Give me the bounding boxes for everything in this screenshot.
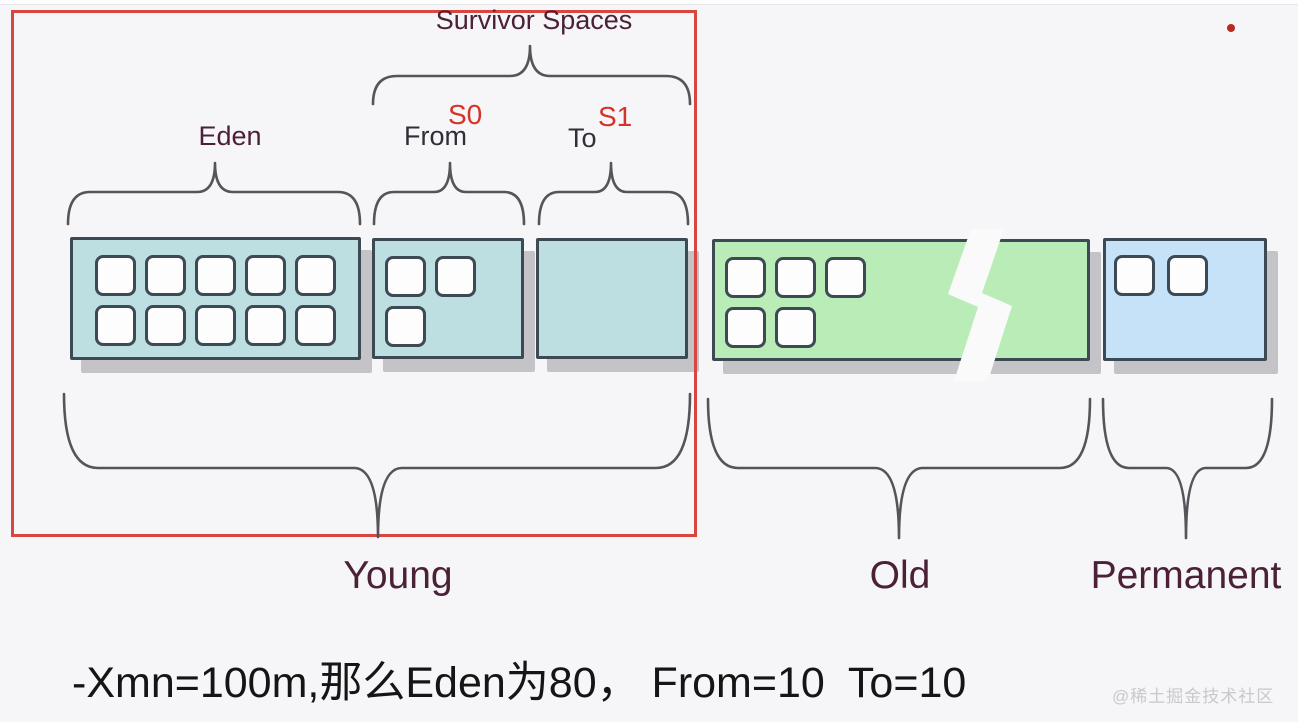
to-label: To bbox=[568, 123, 597, 154]
object-cell bbox=[1114, 255, 1155, 296]
object-cell bbox=[1167, 255, 1208, 296]
permanent-brace bbox=[1103, 399, 1272, 538]
object-cell bbox=[725, 257, 766, 298]
old-object-cells bbox=[725, 257, 866, 348]
s1-superscript-label: S1 bbox=[598, 101, 632, 133]
young-generation-label: Young bbox=[278, 554, 518, 598]
old-region bbox=[712, 239, 1090, 361]
old-generation-label: Old bbox=[800, 554, 1000, 598]
jvm-heap-diagram: Survivor Spaces Eden From S0 To S1 Young… bbox=[0, 0, 1298, 722]
permanent-object-cells bbox=[1114, 255, 1208, 296]
young-generation-outline bbox=[11, 10, 697, 537]
object-cell bbox=[775, 257, 816, 298]
watermark-text: @稀土掘金技术社区 bbox=[1112, 682, 1274, 707]
recording-red-dot bbox=[1227, 24, 1235, 32]
object-cell bbox=[825, 257, 866, 298]
permanent-generation-label: Permanent bbox=[1062, 554, 1298, 598]
object-cell bbox=[775, 307, 816, 348]
s0-superscript-label: S0 bbox=[448, 99, 482, 131]
cell-row bbox=[725, 307, 866, 348]
survivor-spaces-label: Survivor Spaces bbox=[404, 5, 664, 36]
cell-row bbox=[1114, 255, 1208, 296]
caption-text: -Xmn=100m,那么Eden为80， From=10 To=10 bbox=[72, 648, 966, 710]
permanent-region bbox=[1103, 238, 1267, 361]
cell-row bbox=[725, 257, 866, 298]
eden-label: Eden bbox=[180, 121, 280, 152]
old-brace bbox=[708, 399, 1090, 538]
object-cell bbox=[725, 307, 766, 348]
